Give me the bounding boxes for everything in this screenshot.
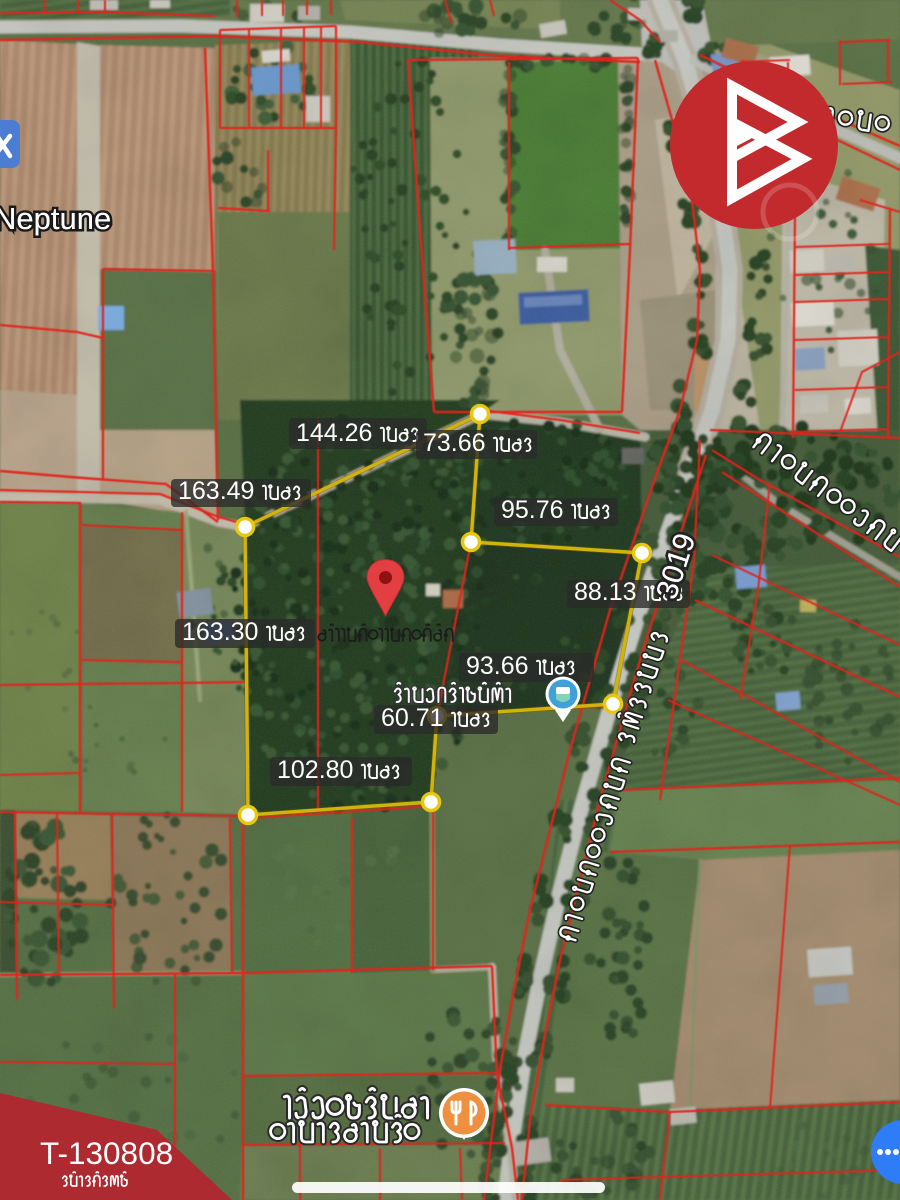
svg-text:102.80: 102.80	[277, 756, 353, 784]
svg-text:95.76: 95.76	[501, 496, 564, 524]
svg-text:60.71: 60.71	[381, 704, 444, 732]
svg-text:93.66: 93.66	[466, 652, 529, 680]
svg-text:Neptune: Neptune	[0, 201, 111, 236]
svg-text:3019: 3019	[650, 529, 702, 603]
svg-text:163.30: 163.30	[182, 618, 258, 646]
svg-text:88.13: 88.13	[574, 578, 637, 606]
svg-text:144.26: 144.26	[296, 419, 372, 447]
svg-text:T-130808: T-130808	[40, 1135, 173, 1171]
svg-text:73.66: 73.66	[423, 429, 486, 457]
svg-text:163.49: 163.49	[178, 477, 254, 505]
